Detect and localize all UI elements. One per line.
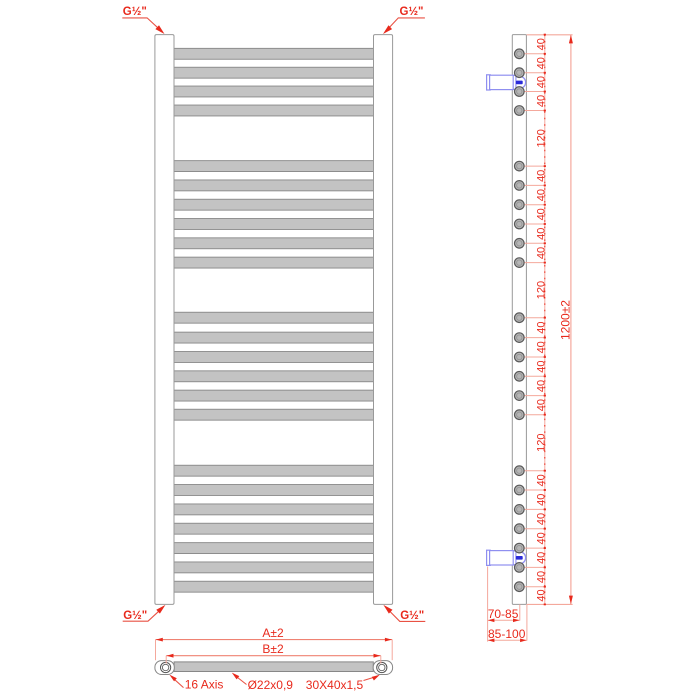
svg-text:40: 40 <box>535 474 547 486</box>
svg-text:40: 40 <box>535 380 547 392</box>
svg-text:40: 40 <box>535 399 547 411</box>
svg-text:1200±2: 1200±2 <box>558 300 572 340</box>
svg-text:A±2: A±2 <box>262 626 284 640</box>
svg-text:40: 40 <box>535 552 547 564</box>
svg-text:40: 40 <box>535 95 547 107</box>
svg-text:120: 120 <box>535 434 547 452</box>
svg-text:40: 40 <box>535 571 547 583</box>
svg-text:40: 40 <box>535 189 547 201</box>
svg-text:40: 40 <box>535 76 547 88</box>
svg-text:40: 40 <box>535 208 547 220</box>
svg-text:G½": G½" <box>400 610 424 622</box>
svg-text:40: 40 <box>535 494 547 506</box>
svg-text:40: 40 <box>535 247 547 259</box>
svg-text:16 Axis: 16 Axis <box>185 677 224 691</box>
svg-text:120: 120 <box>535 281 547 299</box>
svg-text:40: 40 <box>535 589 547 601</box>
svg-text:40: 40 <box>535 38 547 50</box>
svg-text:B±2: B±2 <box>262 642 284 656</box>
svg-text:70-85: 70-85 <box>488 607 519 621</box>
svg-text:G½": G½" <box>123 6 147 18</box>
svg-text:40: 40 <box>535 532 547 544</box>
svg-text:40: 40 <box>535 57 547 69</box>
svg-text:40: 40 <box>535 341 547 353</box>
svg-text:120: 120 <box>535 129 547 147</box>
svg-text:G½": G½" <box>400 6 424 18</box>
svg-text:40: 40 <box>535 513 547 525</box>
svg-text:30X40x1,5: 30X40x1,5 <box>306 678 364 692</box>
svg-text:40: 40 <box>535 321 547 333</box>
svg-text:40: 40 <box>535 170 547 182</box>
svg-text:40: 40 <box>535 228 547 240</box>
svg-text:40: 40 <box>535 360 547 372</box>
svg-text:85-100: 85-100 <box>488 627 526 641</box>
svg-text:Ø22x0,9: Ø22x0,9 <box>248 678 294 692</box>
svg-text:G½": G½" <box>123 610 147 622</box>
